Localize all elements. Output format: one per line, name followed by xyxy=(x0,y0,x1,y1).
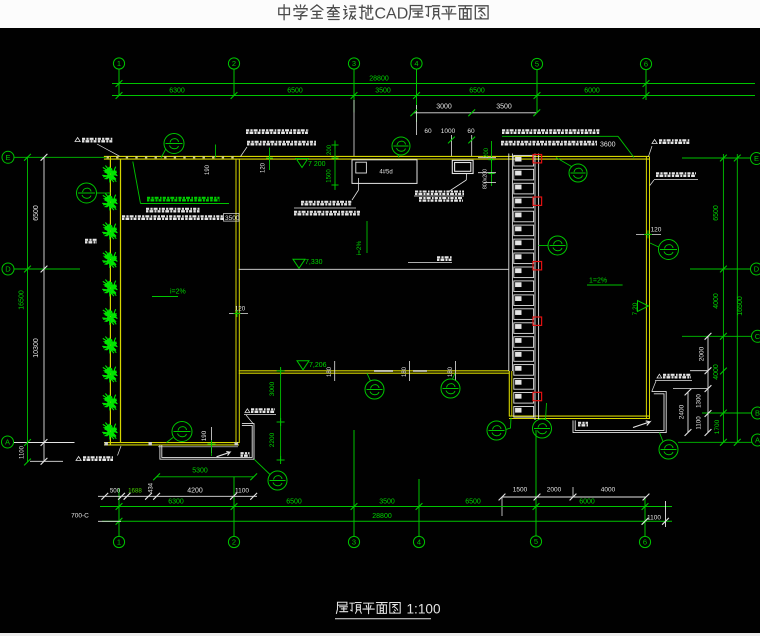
svg-text:1500: 1500 xyxy=(327,169,333,183)
svg-text:120: 120 xyxy=(235,306,246,313)
svg-text:3600: 3600 xyxy=(600,142,616,149)
svg-text:60: 60 xyxy=(467,128,475,135)
svg-text:200: 200 xyxy=(327,144,333,155)
svg-text:200: 200 xyxy=(484,147,490,158)
svg-text:6000: 6000 xyxy=(579,499,595,506)
svg-text:1: 1 xyxy=(117,538,121,547)
svg-text:3000: 3000 xyxy=(436,104,452,111)
svg-text:1500: 1500 xyxy=(513,487,528,494)
svg-text:180: 180 xyxy=(402,366,408,377)
svg-text:D: D xyxy=(5,265,11,274)
svg-text:4200: 4200 xyxy=(187,488,203,495)
svg-text:4#5d: 4#5d xyxy=(379,170,392,176)
svg-text:16500: 16500 xyxy=(19,290,26,310)
svg-text:2000: 2000 xyxy=(547,487,562,494)
svg-text:7,330: 7,330 xyxy=(305,259,323,266)
svg-text:2200: 2200 xyxy=(269,432,276,447)
svg-text:2: 2 xyxy=(232,538,236,547)
svg-text:i=2%: i=2% xyxy=(356,240,363,255)
svg-text:1000: 1000 xyxy=(441,128,456,135)
svg-text:6500: 6500 xyxy=(713,205,720,221)
svg-text:4000: 4000 xyxy=(713,364,720,380)
svg-text:5: 5 xyxy=(535,60,539,69)
svg-text:3500: 3500 xyxy=(375,88,391,95)
svg-text:6: 6 xyxy=(643,538,647,547)
svg-text:4: 4 xyxy=(414,59,418,68)
svg-text:D: D xyxy=(754,265,760,274)
svg-text:120: 120 xyxy=(651,227,662,234)
svg-text:C: C xyxy=(755,332,760,341)
svg-text:3500: 3500 xyxy=(379,499,395,506)
svg-text:E: E xyxy=(5,153,10,162)
svg-text:7,20: 7,20 xyxy=(632,302,639,315)
svg-text:E: E xyxy=(754,154,759,163)
svg-text:6300: 6300 xyxy=(168,499,184,506)
svg-text:6500: 6500 xyxy=(469,88,485,95)
svg-text:700-C: 700-C xyxy=(71,513,89,520)
svg-text:i=2%: i=2% xyxy=(170,289,186,296)
svg-text:120: 120 xyxy=(261,162,267,173)
svg-text:1100: 1100 xyxy=(647,515,661,522)
svg-text:190: 190 xyxy=(205,164,211,175)
svg-text:7,206: 7,206 xyxy=(309,362,327,369)
svg-text:2400: 2400 xyxy=(679,404,686,419)
svg-text:1300: 1300 xyxy=(696,394,703,408)
svg-text:5300: 5300 xyxy=(192,468,208,475)
svg-text:1:100: 1:100 xyxy=(407,602,441,617)
svg-text:60: 60 xyxy=(424,128,432,135)
svg-text:3: 3 xyxy=(352,59,356,68)
svg-text:A: A xyxy=(755,436,760,445)
svg-text:1100: 1100 xyxy=(20,445,26,459)
svg-text:190: 190 xyxy=(201,430,208,441)
svg-text:5: 5 xyxy=(534,537,538,546)
svg-text:16500: 16500 xyxy=(737,296,744,316)
svg-text:4000: 4000 xyxy=(713,293,720,309)
svg-text:1100: 1100 xyxy=(696,416,703,430)
svg-text:A: A xyxy=(5,438,10,447)
svg-text:6: 6 xyxy=(644,60,648,69)
svg-text:1700: 1700 xyxy=(714,419,721,434)
svg-text:1100: 1100 xyxy=(235,488,249,495)
svg-text:800x200: 800x200 xyxy=(483,169,489,189)
svg-text:3500: 3500 xyxy=(496,104,512,111)
svg-text:6500: 6500 xyxy=(33,205,40,221)
svg-text:28800: 28800 xyxy=(372,513,392,520)
svg-text:500: 500 xyxy=(110,488,121,495)
svg-text:B: B xyxy=(755,409,760,418)
svg-text:1: 1 xyxy=(117,59,121,68)
svg-text:CAD: CAD xyxy=(375,5,409,22)
svg-text:2000: 2000 xyxy=(699,346,706,361)
svg-text:180: 180 xyxy=(327,366,333,377)
svg-text:6500: 6500 xyxy=(465,499,481,506)
svg-text:1688: 1688 xyxy=(128,488,142,495)
svg-text:6500: 6500 xyxy=(287,88,303,95)
svg-text:10300: 10300 xyxy=(33,338,40,358)
svg-text:2: 2 xyxy=(232,59,236,68)
svg-text:6300: 6300 xyxy=(169,88,185,95)
svg-text:4000: 4000 xyxy=(601,487,616,494)
svg-text:1=2%: 1=2% xyxy=(589,278,607,285)
svg-text:3000: 3000 xyxy=(269,381,276,396)
svg-text:434: 434 xyxy=(149,482,155,493)
svg-text:180: 180 xyxy=(448,366,454,377)
svg-text:7 200: 7 200 xyxy=(308,161,326,168)
svg-text:3: 3 xyxy=(352,538,356,547)
svg-text:28800: 28800 xyxy=(369,76,389,83)
svg-text:6000: 6000 xyxy=(584,88,600,95)
svg-text:4: 4 xyxy=(417,538,421,547)
svg-text:6500: 6500 xyxy=(286,499,302,506)
